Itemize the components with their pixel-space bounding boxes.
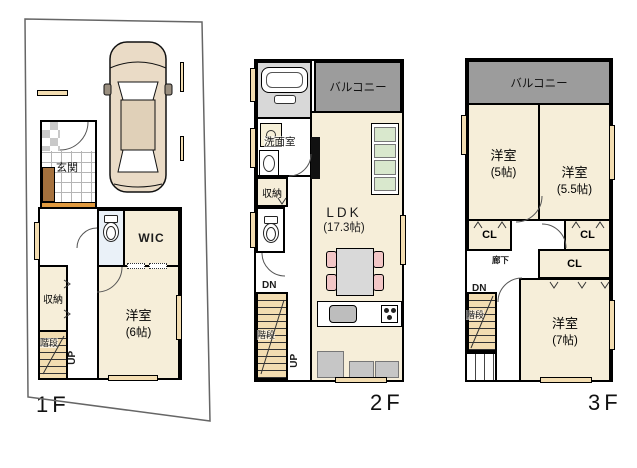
vanity-sink-icon	[259, 150, 279, 176]
f1-bedroom-label: 洋室	[125, 305, 151, 324]
f3-floor-label: 3F	[588, 390, 622, 416]
bathtub-icon	[261, 67, 308, 93]
f1-up-label: UP	[67, 351, 79, 365]
f1-entrance-label: 玄関	[56, 162, 78, 175]
f1-porch-tiles	[42, 122, 60, 153]
f1-bedroom-size: (6帖)	[126, 324, 152, 340]
dining-table	[336, 248, 374, 296]
f2-ldk-label: LDK	[304, 205, 384, 221]
fence-post	[180, 62, 184, 92]
f3-bedroom7-label: 洋室	[552, 313, 578, 332]
window	[250, 68, 256, 102]
window	[335, 377, 387, 383]
f2-floor-label: 2F	[370, 390, 404, 416]
window	[108, 375, 158, 381]
f1-wic-room: WIC	[123, 209, 180, 267]
f2-ldk-size: (17.3帖)	[304, 222, 384, 235]
f3-bedroom55-size: (5.5帖)	[557, 181, 592, 197]
f2-washroom-label: 洗面室	[264, 136, 296, 148]
dining-chair	[373, 274, 384, 291]
f2-storage-label: 収納	[262, 185, 282, 200]
f2-balcony: バルコニー	[314, 61, 402, 113]
f3-closet-right: CL	[564, 219, 611, 251]
f3-closet-middle-label: CL	[567, 258, 582, 270]
f1-shoe-cabinet	[42, 167, 55, 202]
f3-bedroom5-label: 洋室	[490, 145, 516, 164]
furniture-block	[317, 351, 344, 378]
f2-toilet-room	[256, 207, 285, 253]
f2-bathroom	[256, 61, 312, 119]
f3-balcony-label: バルコニー	[510, 75, 567, 91]
furniture-block	[375, 361, 399, 378]
f3-bedroom55: 洋室 (5.5帖)	[538, 103, 611, 221]
f3-bedroom55-label: 洋室	[561, 162, 587, 181]
sliding-door-mark	[149, 263, 167, 269]
f2-up-label: UP	[289, 354, 301, 368]
tv-board	[311, 137, 320, 179]
window	[609, 125, 615, 180]
f3-bedroom5-size: (5帖)	[491, 164, 517, 180]
window	[540, 377, 592, 383]
f1-floor-label: 1F	[36, 392, 70, 418]
dining-chair	[326, 251, 337, 268]
toilet-icon	[102, 215, 120, 243]
dining-chair	[373, 251, 384, 268]
f1-wic-label: WIC	[138, 231, 164, 245]
sliding-door-mark	[127, 263, 145, 269]
bath-counter	[274, 95, 296, 104]
kitchen-sink-icon	[329, 305, 357, 323]
f1-toilet-room	[97, 209, 125, 267]
floor-plan-canvas: 玄関 WIC 収納 階段 UP 洋室 (6帖) 1F バ	[0, 0, 637, 468]
f3-bedroom5: 洋室 (5帖)	[467, 103, 540, 221]
car-icon	[104, 42, 172, 192]
f2-balcony-label: バルコニー	[329, 79, 386, 95]
f3-closet-middle: CL	[538, 249, 611, 279]
f3-stairs-label: 階段	[466, 310, 484, 320]
window	[34, 222, 40, 260]
fence-post	[180, 136, 184, 161]
window	[609, 300, 615, 350]
f3-bedroom7-size: (7帖)	[552, 332, 578, 348]
f2-storage: 収納	[256, 177, 288, 207]
f3-stairs	[467, 292, 497, 352]
stove-icon	[381, 305, 398, 323]
f1-bedroom: 洋室 (6帖)	[97, 265, 180, 380]
f2-dn-label: DN	[262, 280, 276, 292]
f3-lower-closet	[465, 352, 497, 382]
toilet-icon	[262, 216, 280, 244]
f3-bedroom7: 洋室 (7帖)	[519, 278, 611, 382]
window	[400, 215, 406, 265]
f1-entrance-block: 玄関	[40, 120, 97, 208]
kitchen-cabinet	[371, 123, 399, 195]
f2-stairs-label: 階段	[257, 330, 275, 340]
f3-closet-left-label: CL	[482, 229, 497, 241]
window	[461, 115, 467, 155]
f3-closet-right-label: CL	[580, 229, 595, 241]
f2-washroom: 洗面室	[256, 117, 312, 177]
f1-storage-room: 収納	[38, 265, 68, 332]
f3-balcony: バルコニー	[467, 60, 611, 105]
f1-stairs-label: 階段	[40, 338, 58, 348]
kitchen-counter	[317, 301, 402, 327]
f3-corridor-label: 廊下	[492, 256, 509, 266]
dining-chair	[326, 274, 337, 291]
f3-closet-left: CL	[467, 219, 512, 251]
furniture-block	[349, 361, 374, 378]
fence-bar	[37, 90, 68, 96]
f1-storage-label: 収納	[43, 291, 63, 306]
window	[176, 295, 182, 340]
window	[250, 128, 256, 168]
window	[250, 212, 256, 248]
